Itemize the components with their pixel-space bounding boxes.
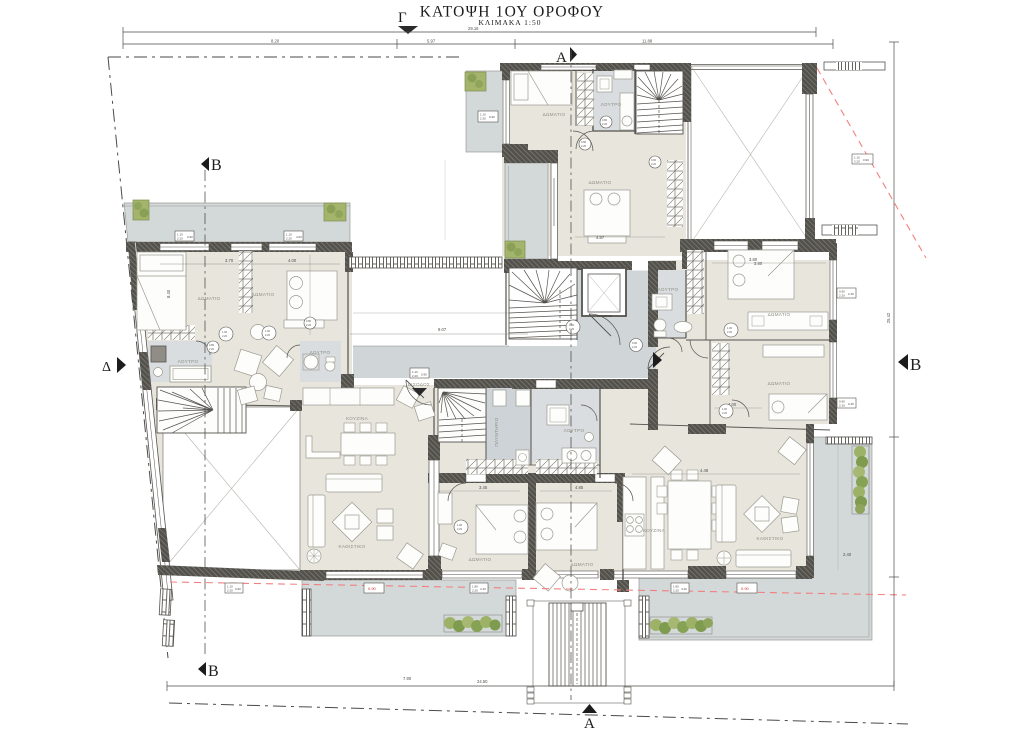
svg-text:A: A (584, 716, 595, 732)
svg-text:2.20: 2.20 (581, 144, 587, 148)
svg-text:4.00: 4.00 (296, 235, 302, 239)
svg-text:25.42: 25.42 (886, 312, 891, 323)
svg-text:0.90: 0.90 (368, 586, 377, 591)
svg-text:ΔΩΜΑΤΙΟ: ΔΩΜΑΤΙΟ (768, 381, 791, 386)
svg-text:0.45: 0.45 (848, 402, 854, 406)
svg-text:ΛΟΥΤΡΟ: ΛΟΥΤΡΟ (178, 359, 199, 364)
svg-text:ΛΟΥΤΡΟ: ΛΟΥΤΡΟ (601, 102, 622, 107)
svg-text:2.20: 2.20 (472, 589, 478, 593)
svg-text:ΛΟΥΤΡΟ: ΛΟΥΤΡΟ (564, 428, 585, 433)
svg-text:ΚΟΥΖΙΝΑ: ΚΟΥΖΙΝΑ (346, 416, 369, 421)
svg-text:8.20: 8.20 (271, 39, 280, 44)
svg-text:0.80: 0.80 (306, 319, 312, 323)
svg-text:0.90: 0.90 (651, 158, 657, 162)
svg-text:1.00: 1.00 (569, 323, 575, 327)
svg-text:29.16: 29.16 (468, 26, 479, 31)
svg-text:2.20: 2.20 (457, 527, 463, 531)
svg-text:0.90: 0.90 (235, 587, 241, 591)
svg-text:0.80: 0.80 (209, 343, 215, 347)
svg-text:0.90: 0.90 (741, 586, 750, 591)
svg-text:2.45: 2.45 (848, 292, 854, 296)
svg-text:2.20: 2.20 (412, 374, 418, 378)
svg-text:4.00: 4.00 (288, 258, 297, 263)
svg-text:0.90: 0.90 (632, 341, 638, 345)
svg-text:2.20: 2.20 (839, 294, 845, 298)
svg-text:ΠΛΥΝΤΗΡΙΟ: ΠΛΥΝΤΗΡΙΟ (494, 417, 499, 446)
svg-text:ΛΟΥΤΡΟ: ΛΟΥΤΡΟ (310, 350, 331, 355)
svg-text:2.20: 2.20 (209, 347, 215, 351)
svg-text:4.40: 4.40 (480, 587, 486, 591)
svg-text:2.20: 2.20 (306, 323, 312, 327)
svg-text:2.20: 2.20 (569, 327, 575, 331)
svg-text:ΔΩΜΑΤΙΟ: ΔΩΜΑΤΙΟ (589, 180, 612, 185)
svg-text:2.40: 2.40 (843, 552, 852, 557)
svg-text:1.00: 1.00 (727, 326, 733, 330)
svg-text:B: B (211, 157, 222, 174)
svg-text:ΚΑΘΙΣΤΙΚΟ: ΚΑΘΙΣΤΙΚΟ (757, 536, 784, 541)
svg-text:4.48: 4.48 (700, 468, 709, 473)
svg-text:2.20: 2.20 (727, 330, 733, 334)
svg-text:ΔΩΜΑΤΙΟ: ΔΩΜΑΤΙΟ (198, 296, 221, 301)
svg-text:2.20: 2.20 (673, 589, 679, 593)
svg-text:24.50: 24.50 (477, 679, 488, 684)
svg-text:Γ: Γ (398, 10, 407, 26)
svg-text:ΔΩΜΑΤΙΟ: ΔΩΜΑΤΙΟ (252, 292, 275, 297)
svg-text:4.85: 4.85 (575, 485, 584, 490)
svg-text:B: B (910, 355, 921, 374)
svg-text:0.80: 0.80 (602, 118, 608, 122)
svg-text:0.90: 0.90 (187, 235, 193, 239)
svg-text:1.00: 1.00 (265, 329, 271, 333)
svg-text:4.87: 4.87 (596, 235, 605, 240)
svg-text:9.07: 9.07 (438, 327, 447, 332)
svg-text:ΚΛΙΜΑΚΑ 1:50: ΚΛΙΜΑΚΑ 1:50 (478, 18, 541, 27)
svg-text:8.40: 8.40 (166, 289, 171, 298)
svg-text:ΚΟΥΖΙΝΑ: ΚΟΥΖΙΝΑ (643, 528, 666, 533)
svg-text:0.90: 0.90 (421, 373, 427, 377)
svg-text:2.20: 2.20 (286, 237, 292, 241)
svg-text:1.00: 1.00 (722, 407, 728, 411)
svg-text:2.20: 2.20 (480, 117, 486, 121)
svg-text:2.20: 2.20 (265, 333, 271, 337)
svg-text:ΔΩΜΑΤΙΟ: ΔΩΜΑΤΙΟ (469, 557, 492, 562)
svg-text:2.20: 2.20 (839, 404, 845, 408)
svg-text:2.20: 2.20 (651, 162, 657, 166)
svg-text:ΛΟΥΤΡΟ: ΛΟΥΤΡΟ (658, 287, 679, 292)
svg-text:1.00: 1.00 (457, 523, 463, 527)
svg-text:5.97: 5.97 (427, 39, 436, 44)
svg-text:1.00: 1.00 (222, 330, 228, 334)
svg-text:0.90: 0.90 (489, 115, 495, 119)
svg-text:3.70: 3.70 (225, 258, 234, 263)
svg-text:ΕΙΣΟΔΟΣ: ΕΙΣΟΔΟΣ (408, 382, 430, 387)
svg-text:0.90: 0.90 (581, 140, 587, 144)
svg-text:ΔΩΜΑΤΙΟ: ΔΩΜΑΤΙΟ (543, 112, 566, 117)
svg-text:3.45: 3.45 (479, 485, 488, 490)
svg-text:2.20: 2.20 (602, 122, 608, 126)
svg-text:4.40: 4.40 (681, 587, 687, 591)
svg-text:2.20: 2.20 (722, 411, 728, 415)
svg-text:0.90: 0.90 (863, 158, 869, 162)
svg-text:2.20: 2.20 (854, 160, 860, 164)
svg-text:3.80: 3.80 (754, 261, 763, 266)
svg-text:11.88: 11.88 (642, 39, 653, 44)
svg-text:ΔΩΜΑΤΙΟ: ΔΩΜΑΤΙΟ (768, 312, 791, 317)
svg-text:2.20: 2.20 (632, 345, 638, 349)
svg-text:Δ: Δ (102, 360, 111, 375)
svg-text:2.20: 2.20 (177, 237, 183, 241)
svg-text:ΔΩΜΑΤΙΟ: ΔΩΜΑΤΙΟ (571, 562, 594, 567)
svg-text:2.20: 2.20 (227, 589, 233, 593)
svg-text:7.90: 7.90 (403, 676, 412, 681)
svg-text:B: B (208, 663, 219, 680)
svg-text:ΚΑΘΙΣΤΙΚΟ: ΚΑΘΙΣΤΙΚΟ (339, 544, 366, 549)
svg-text:2.20: 2.20 (222, 334, 228, 338)
